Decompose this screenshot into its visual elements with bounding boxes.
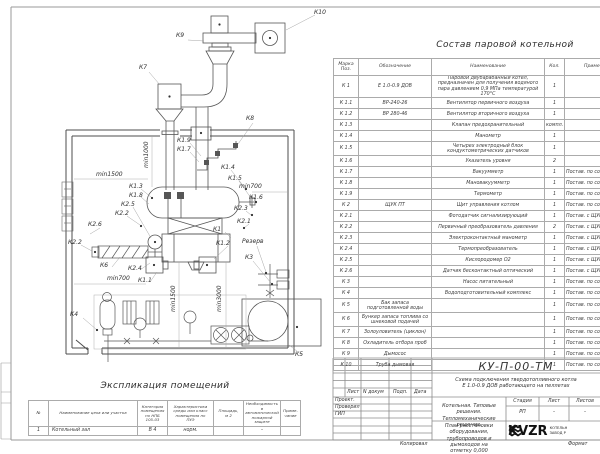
- equipment-table-title: Состав паровой котельной: [425, 40, 585, 50]
- dimension-label: min700: [239, 184, 262, 190]
- column-header: Наименование цеха или участка: [49, 401, 138, 427]
- row-code: [359, 255, 432, 266]
- row-note: Постав. по согла: [565, 327, 600, 338]
- equipment-row: К 2.6Датчик бесконтактный оптический1Пос…: [334, 266, 600, 277]
- equipment-tag-label: К1: [213, 227, 221, 233]
- row-mark: К 2.4: [334, 244, 359, 255]
- row-qty: 1: [545, 299, 565, 313]
- sheets-header: Листов: [570, 399, 600, 405]
- sheet-value: -: [540, 410, 568, 416]
- row-name: Насос питательный: [432, 277, 545, 288]
- row-note: [565, 120, 600, 131]
- column-header: Приме- чание: [281, 401, 301, 427]
- row-note: [565, 98, 600, 109]
- equipment-tag-label: К10: [314, 10, 326, 16]
- row-mark: К 1: [334, 76, 359, 98]
- row-qty: 1: [545, 98, 565, 109]
- row-mark: К 6: [334, 313, 359, 327]
- row-note: Постав. с ЩУК: [565, 266, 600, 277]
- row-mark: К 1.9: [334, 189, 359, 200]
- row-name: Фотодатчик сигнализирующий: [432, 211, 545, 222]
- column-header: Характеристика среды или класс помещения…: [168, 401, 214, 427]
- equipment-tag-label: К4: [70, 312, 78, 318]
- row-qty: компл.: [545, 120, 565, 131]
- row-mark: К 2: [334, 200, 359, 211]
- row-note: [565, 142, 600, 156]
- row-note: Постав. с ЩУК: [565, 233, 600, 244]
- equipment-row: К 1.6Указатель уровня2: [334, 156, 600, 167]
- equipment-tag-label: К9: [176, 33, 184, 39]
- row-code: [359, 222, 432, 233]
- row-note: Постав. с ЩУК: [565, 255, 600, 266]
- row-name: Вентилятор первичного воздуха: [432, 98, 545, 109]
- row-code: [359, 277, 432, 288]
- equipment-tag-label: К2.1: [237, 219, 251, 225]
- row-name: [432, 299, 545, 313]
- row-qty: 1: [545, 189, 565, 200]
- equipment-table: Марка Поз.ОбозначениеНаименованиеКол.При…: [333, 58, 600, 371]
- equipment-tag-label: К1.8: [129, 193, 143, 199]
- dimension-label: min3000: [217, 285, 223, 312]
- row-note: Постав. с ЩУК: [565, 222, 600, 233]
- sign-row-gip: ГИП: [335, 412, 345, 418]
- row-mark: К 1.5: [334, 142, 359, 156]
- room-cell: [214, 427, 244, 436]
- equipment-tag-label: К1.2: [216, 241, 230, 247]
- drawing-sheet: { "equipment_table": { "title": "Состав …: [0, 0, 600, 450]
- equipment-row: К 2.3Электроконтактный манометр1Постав. …: [334, 233, 600, 244]
- row-mark: К 10: [334, 360, 359, 371]
- row-note: Постав. по согла: [565, 200, 600, 211]
- logo-caption: КОТЕЛЬН ЗАВОД Р: [550, 426, 568, 435]
- room-row: 1Котельный залВ 4норм.-: [29, 427, 301, 436]
- row-qty: 1: [545, 313, 565, 327]
- equipment-row: К 5Бак запаса подготовленной воды1Постав…: [334, 299, 600, 313]
- row-code: Охладитель отбора проб: [359, 338, 432, 349]
- row-code: [359, 189, 432, 200]
- column-header: Кол.: [545, 59, 565, 76]
- row-code: [359, 211, 432, 222]
- equipment-tag-label: К2.3: [234, 206, 248, 212]
- row-qty: 1: [545, 327, 565, 338]
- equipment-row: К 6Бункер запаса топлива со шнековой под…: [334, 313, 600, 327]
- row-note: [565, 131, 600, 142]
- row-mark: К 4: [334, 288, 359, 299]
- column-header: Марка Поз.: [334, 59, 359, 76]
- row-qty: 1: [545, 167, 565, 178]
- row-name: Термопреобразователь: [432, 244, 545, 255]
- row-note: Постав. по согла: [565, 288, 600, 299]
- row-name: Кислородомер О2: [432, 255, 545, 266]
- row-code: Бак запаса подготовленной воды: [359, 299, 432, 313]
- room-cell: Котельный зал: [49, 427, 138, 436]
- sign-col-signature: Подп.: [393, 390, 408, 396]
- column-header: Площадь, м 2: [214, 401, 244, 427]
- row-name: Первичный преобразователь давления: [432, 222, 545, 233]
- row-mark: К 2.6: [334, 266, 359, 277]
- equipment-row: К 1Е 1.0-0.9 ДОВПаровой двубарабанный ко…: [334, 76, 600, 98]
- equipment-tag-label: К1.6: [249, 195, 263, 201]
- drawing-subtitle: Схема подключения твердотопливного котла…: [434, 377, 598, 390]
- row-mark: К 7: [334, 327, 359, 338]
- equipment-row: К 2.4Термопреобразователь1Постав. с ЩУК: [334, 244, 600, 255]
- column-header: Необходимость в автоматической пожарной …: [244, 401, 281, 427]
- column-header: Категория помещения по НПБ 105-03: [138, 401, 168, 427]
- sheet-title: План расстановки оборудования, трубопров…: [433, 423, 505, 454]
- row-note: Постав. по согла: [565, 338, 600, 349]
- company-logo: KVZR КОТЕЛЬН ЗАВОД Р: [508, 423, 600, 439]
- dimension-label: min1500: [171, 285, 177, 312]
- row-qty: 1: [545, 288, 565, 299]
- equipment-row: К 2.5Кислородомер О21Постав. с ЩУК: [334, 255, 600, 266]
- row-note: Постав. по согла: [565, 167, 600, 178]
- equipment-row: К 1.5Четырех электродный блок кондуктоме…: [334, 142, 600, 156]
- row-code: [359, 120, 432, 131]
- row-name: Паровой двубарабанный котел, предназначе…: [432, 76, 545, 98]
- equipment-row: К 4Водоподготовительный комплекс1Постав.…: [334, 288, 600, 299]
- footer-copied-label: Копировал: [400, 442, 427, 448]
- row-mark: К 1.6: [334, 156, 359, 167]
- row-note: Постав. по согла: [565, 299, 600, 313]
- equipment-row: К 2.2Первичный преобразователь давления2…: [334, 222, 600, 233]
- stage-header: Стадия: [507, 399, 538, 405]
- equipment-row: К 8Охладитель отбора проб1Постав. по сог…: [334, 338, 600, 349]
- equipment-tag-label: К1.5: [228, 176, 242, 182]
- equipment-tag-label: К2.2: [68, 240, 82, 246]
- equipment-tag-label: К1.3: [129, 184, 143, 190]
- row-qty: 1: [545, 277, 565, 288]
- row-name: Четырех электродный блок кондуктометриче…: [432, 142, 545, 156]
- row-code: ВР 280-46: [359, 109, 432, 120]
- row-name: Термометр: [432, 189, 545, 200]
- row-note: [565, 109, 600, 120]
- row-qty: 1: [545, 338, 565, 349]
- sign-col-list: Лист: [347, 390, 359, 396]
- equipment-row: К 2ЩУК ПТЩит управления котлом1Постав. п…: [334, 200, 600, 211]
- sheets-value: -: [570, 410, 600, 416]
- row-qty: 1: [545, 211, 565, 222]
- row-name: [432, 327, 545, 338]
- equipment-row: К 1.1ВР-240-26Вентилятор первичного возд…: [334, 98, 600, 109]
- row-code: [359, 156, 432, 167]
- row-name: Водоподготовительный комплекс: [432, 288, 545, 299]
- row-code: [359, 178, 432, 189]
- row-name: Вакуумметр: [432, 167, 545, 178]
- room-cell: норм.: [168, 427, 214, 436]
- logo-zigzag-icon: [508, 423, 523, 439]
- row-code: Дымосос: [359, 349, 432, 360]
- row-mark: К 1.1: [334, 98, 359, 109]
- row-name: Электроконтактный манометр: [432, 233, 545, 244]
- row-code: [359, 233, 432, 244]
- row-mark: К 2.2: [334, 222, 359, 233]
- row-note: Постав. с ЩУК: [565, 244, 600, 255]
- equipment-tag-label: К2.4: [128, 266, 142, 272]
- equipment-row: К 1.4Манометр1: [334, 131, 600, 142]
- sign-row-designer: Проект.: [335, 398, 355, 404]
- row-mark: К 1.8: [334, 178, 359, 189]
- row-qty: 1: [545, 349, 565, 360]
- row-mark: К 1.2: [334, 109, 359, 120]
- equipment-tag-label: К5: [295, 352, 303, 358]
- row-name: Мановакуумметр: [432, 178, 545, 189]
- row-code: [359, 131, 432, 142]
- stage-value: РП: [507, 410, 538, 416]
- row-code: ЩУК ПТ: [359, 200, 432, 211]
- equipment-tag-label: К2.2: [115, 211, 129, 217]
- room-cell: -: [244, 427, 281, 436]
- footer-format-label: Формат: [568, 442, 587, 448]
- row-note: Постав. по согла: [565, 349, 600, 360]
- rooms-table: №Наименование цеха или участкаКатегория …: [28, 400, 301, 436]
- row-mark: К 2.3: [334, 233, 359, 244]
- row-name: Указатель уровня: [432, 156, 545, 167]
- row-code: Бункер запаса топлива со шнековой подаче…: [359, 313, 432, 327]
- row-mark: К 2.1: [334, 211, 359, 222]
- dimension-label: min1500: [96, 172, 123, 178]
- equipment-row: К 3Насос питательный1Постав. по согла: [334, 277, 600, 288]
- row-mark: К 9: [334, 349, 359, 360]
- row-name: [432, 313, 545, 327]
- row-mark: К 8: [334, 338, 359, 349]
- equipment-row: К 2.1Фотодатчик сигнализирующий1Постав. …: [334, 211, 600, 222]
- row-name: [432, 349, 545, 360]
- row-code: Труба дымовая: [359, 360, 432, 371]
- row-mark: К 1.7: [334, 167, 359, 178]
- row-qty: 1: [545, 255, 565, 266]
- equipment-row: К 1.8Мановакуумметр1Постав. по согла: [334, 178, 600, 189]
- row-qty: 1: [545, 76, 565, 98]
- row-note: Постав. с ЩУК: [565, 211, 600, 222]
- row-name: Датчик бесконтактный оптический: [432, 266, 545, 277]
- row-note: [565, 156, 600, 167]
- equipment-row: К 7Золоуловитель (циклон)1Постав. по сог…: [334, 327, 600, 338]
- equipment-row: К 1.2ВР 280-46Вентилятор вторичного возд…: [334, 109, 600, 120]
- equipment-tag-label: Резерв: [242, 239, 264, 245]
- column-header: Обозначение: [359, 59, 432, 76]
- equipment-tag-label: К2.6: [88, 222, 102, 228]
- row-code: [359, 288, 432, 299]
- row-note: Постав. по согла: [565, 277, 600, 288]
- equipment-row: К 9Дымосос1Постав. по согла: [334, 349, 600, 360]
- row-mark: К 3: [334, 277, 359, 288]
- equipment-tag-label: К6: [100, 263, 108, 269]
- equipment-row: К 1.7Вакуумметр1Постав. по согла: [334, 167, 600, 178]
- row-name: [432, 338, 545, 349]
- row-name: Щит управления котлом: [432, 200, 545, 211]
- row-mark: К 5: [334, 299, 359, 313]
- row-qty: 2: [545, 156, 565, 167]
- row-qty: 1: [545, 178, 565, 189]
- row-qty: 1: [545, 142, 565, 156]
- row-qty: 1: [545, 200, 565, 211]
- row-qty: 1: [545, 233, 565, 244]
- document-number: КУ-П-00-ТМ: [432, 360, 600, 374]
- room-cell: В 4: [138, 427, 168, 436]
- row-name: Вентилятор вторичного воздуха: [432, 109, 545, 120]
- dimension-label: min1000: [144, 141, 150, 168]
- equipment-tag-label: К3: [245, 255, 253, 261]
- row-note: Постав. по согла: [565, 178, 600, 189]
- row-qty: 2: [545, 222, 565, 233]
- row-mark: К 2.5: [334, 255, 359, 266]
- row-qty: 1: [545, 109, 565, 120]
- row-qty: 1: [545, 266, 565, 277]
- row-code: ВР-240-26: [359, 98, 432, 109]
- row-qty: 1: [545, 244, 565, 255]
- row-name: Манометр: [432, 131, 545, 142]
- equipment-tag-label: К1.9: [177, 138, 191, 144]
- column-header: Наименование: [432, 59, 545, 76]
- row-code: [359, 142, 432, 156]
- row-note: Постав. по согла: [565, 189, 600, 200]
- room-cell: 1: [29, 427, 49, 436]
- column-header: №: [29, 401, 49, 427]
- equipment-tag-label: К7: [139, 65, 147, 71]
- equipment-tag-label: К1.7: [177, 147, 191, 153]
- row-note: [565, 76, 600, 98]
- equipment-tag-label: К2.5: [121, 202, 135, 208]
- row-mark: К 1.4: [334, 131, 359, 142]
- row-qty: 1: [545, 131, 565, 142]
- sign-col-docnum: N докум: [363, 390, 384, 396]
- row-code: [359, 167, 432, 178]
- equipment-row: К 1.9Термометр1Постав. по согла: [334, 189, 600, 200]
- sign-row-checker: Проверил: [335, 405, 360, 411]
- row-code: Золоуловитель (циклон): [359, 327, 432, 338]
- equipment-tag-label: К1.4: [221, 165, 235, 171]
- row-code: [359, 244, 432, 255]
- rooms-table-title: Экспликация помещений: [95, 381, 235, 391]
- equipment-tag-label: К1.1: [138, 278, 152, 284]
- row-code: Е 1.0-0.9 ДОВ: [359, 76, 432, 98]
- row-note: Постав. по согла: [565, 313, 600, 327]
- row-code: [359, 266, 432, 277]
- equipment-row: К 1.3Клапан предохранительныйкомпл.: [334, 120, 600, 131]
- sign-col-date: Дата: [414, 390, 426, 396]
- sheet-header: Лист: [540, 399, 568, 405]
- row-name: Клапан предохранительный: [432, 120, 545, 131]
- room-cell: [281, 427, 301, 436]
- column-header: Примечание: [565, 59, 600, 76]
- row-mark: К 1.3: [334, 120, 359, 131]
- dimension-label: min700: [107, 276, 130, 282]
- equipment-tag-label: К8: [246, 116, 254, 122]
